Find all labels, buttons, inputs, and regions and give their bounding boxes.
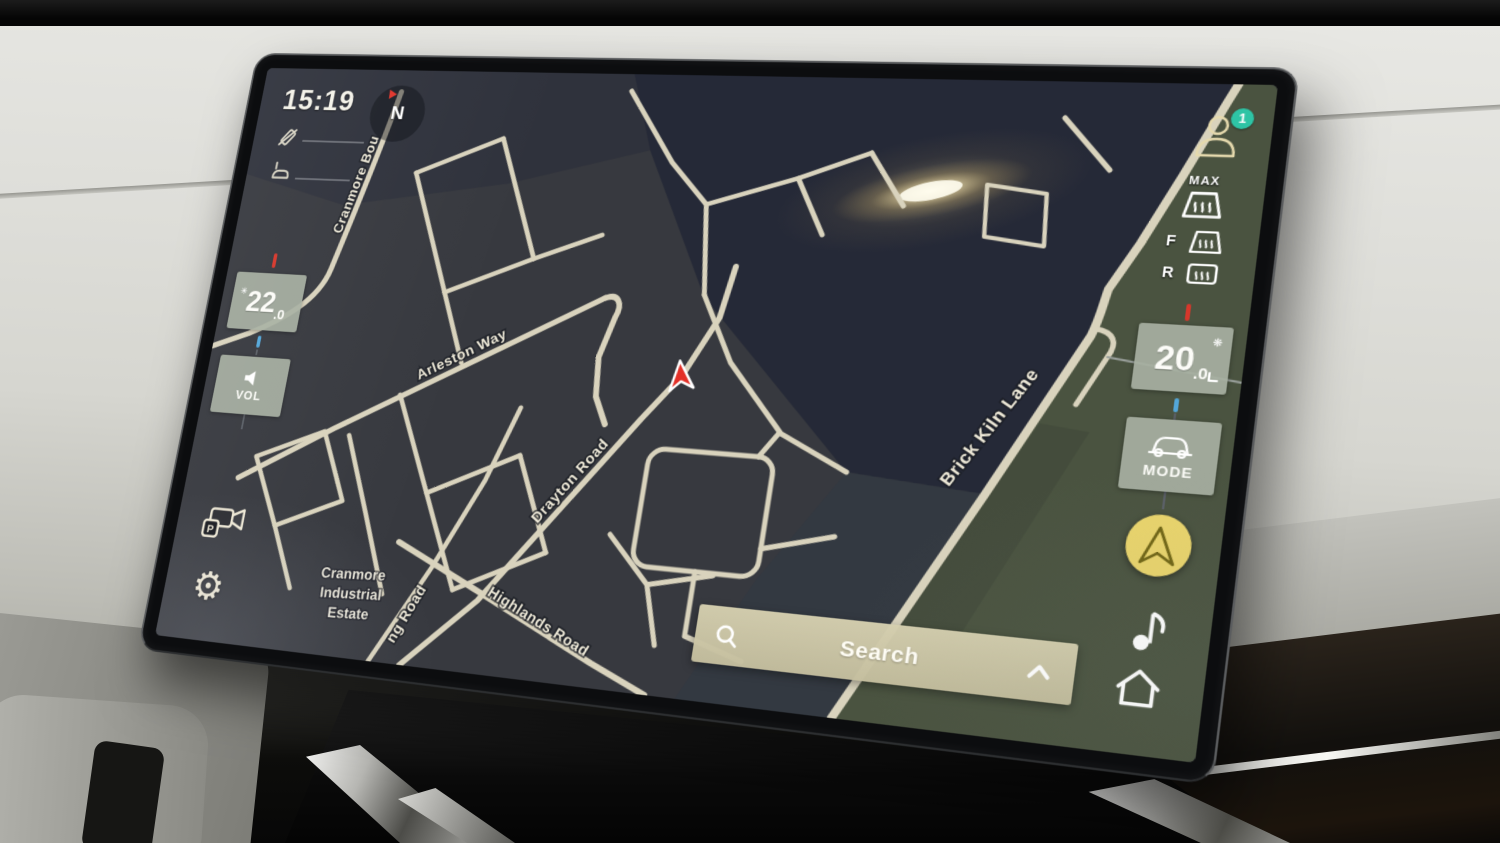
door-handle-recess bbox=[81, 740, 166, 843]
front-defrost-label: F bbox=[1165, 232, 1177, 249]
navigation-arrow-icon bbox=[1122, 512, 1195, 580]
rear-defrost-label: R bbox=[1161, 263, 1175, 280]
windscreen-edge bbox=[0, 0, 1500, 26]
car-mode-icon bbox=[1144, 430, 1199, 462]
front-defrost-button[interactable] bbox=[1185, 229, 1227, 256]
svg-text:Industrial: Industrial bbox=[319, 584, 383, 604]
phone-disconnected-icon bbox=[276, 127, 300, 149]
svg-text:Cranmore: Cranmore bbox=[320, 565, 387, 585]
speaker-icon bbox=[242, 369, 262, 387]
compass-north-label: N bbox=[389, 103, 406, 125]
clock: 15:19 bbox=[280, 84, 358, 118]
car-dashboard-photo: Cranmore Bou Arleston Way Drayton Road n… bbox=[0, 0, 1500, 843]
vehicle-status-icon bbox=[269, 161, 293, 183]
parking-camera-button[interactable]: P bbox=[199, 498, 252, 544]
media-music-button[interactable] bbox=[1127, 603, 1176, 657]
drive-mode-tile[interactable]: MODE bbox=[1118, 417, 1223, 496]
svg-text:Estate: Estate bbox=[326, 604, 369, 623]
passenger-temperature-tile[interactable]: 20 .0 ❋ bbox=[1131, 323, 1234, 395]
drive-mode-label: MODE bbox=[1142, 461, 1194, 481]
driver-temperature-tile[interactable]: ✳ 22 .0 bbox=[226, 272, 307, 333]
fan-icon: ❋ bbox=[1212, 337, 1223, 349]
infotainment-screen: Cranmore Bou Arleston Way Drayton Road n… bbox=[155, 68, 1278, 763]
home-button[interactable] bbox=[1109, 662, 1167, 715]
passenger-temp-value: 20 bbox=[1153, 340, 1197, 376]
volume-tile[interactable]: VOL bbox=[210, 354, 291, 417]
driver-temp-decimal: .0 bbox=[272, 307, 286, 323]
chevron-up-icon[interactable] bbox=[1020, 657, 1057, 685]
rear-defrost-button[interactable] bbox=[1181, 261, 1223, 288]
navigation-button[interactable] bbox=[1122, 512, 1195, 580]
volume-label: VOL bbox=[234, 387, 262, 403]
max-defrost-button[interactable] bbox=[1179, 190, 1226, 221]
compass-north-needle bbox=[386, 87, 397, 99]
profile-button[interactable]: 1 bbox=[1188, 111, 1247, 160]
seat-vent-icon bbox=[1205, 372, 1221, 386]
